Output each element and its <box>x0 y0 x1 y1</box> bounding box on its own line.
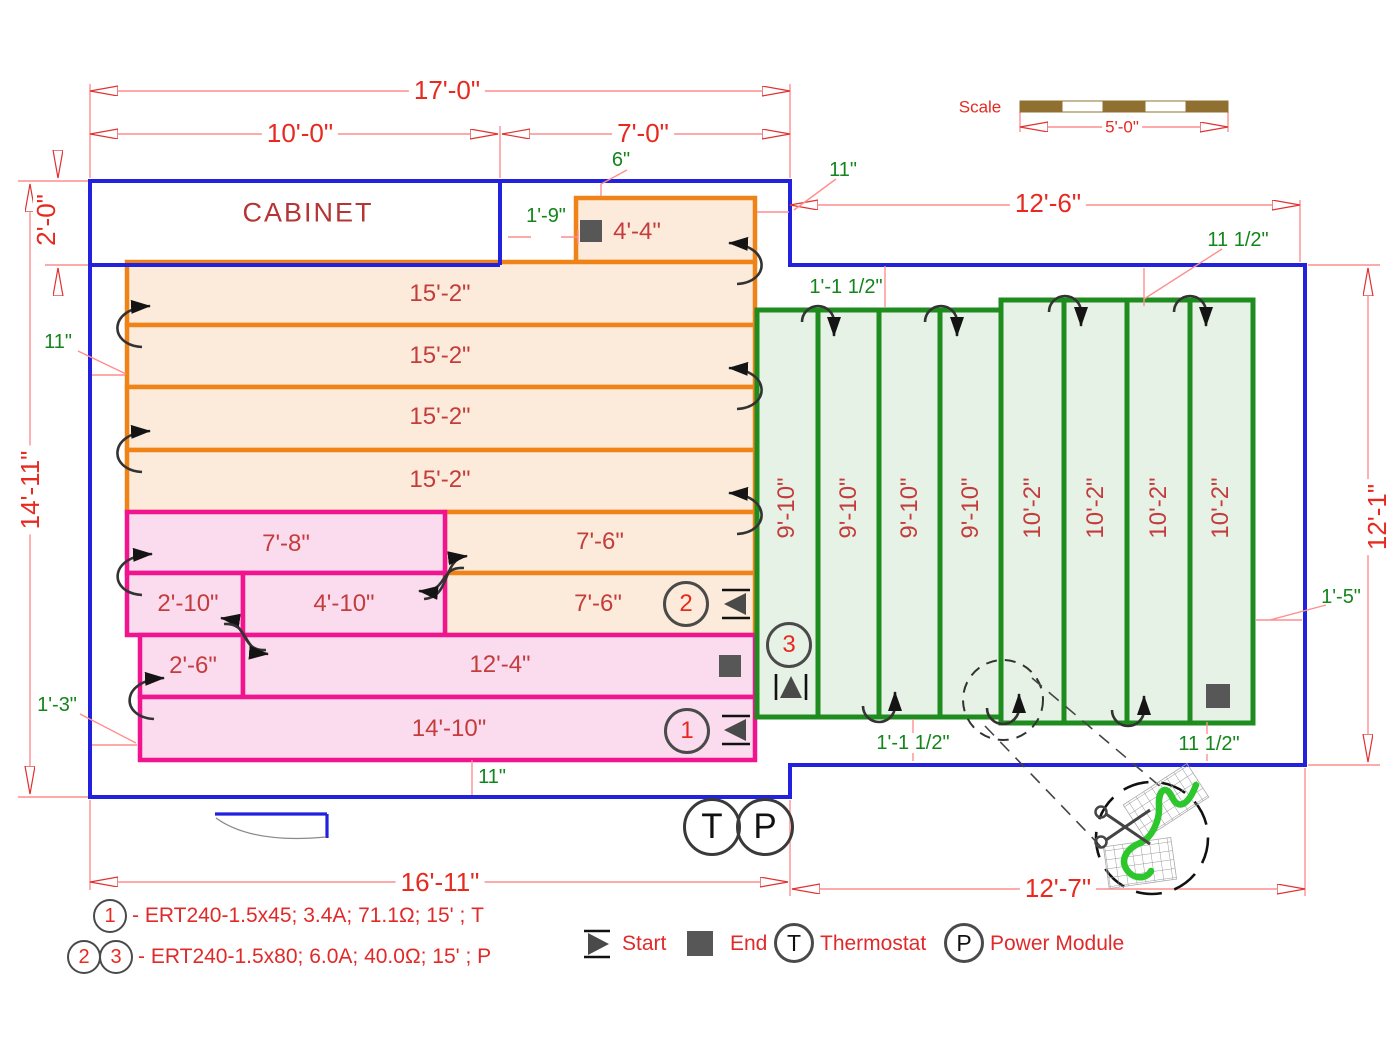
spec2-marker-2-number: 2 <box>78 946 89 969</box>
gap-6in: 6" <box>612 150 630 170</box>
cabinet-label: CABINET <box>242 200 373 227</box>
power-letter: P <box>753 807 776 847</box>
end-symbol-circuit1 <box>719 655 741 677</box>
gap-1-5: 1'-5" <box>1321 587 1361 607</box>
gap-11in-left: 11" <box>44 332 72 352</box>
legend-power-letter: P <box>956 930 971 957</box>
dim-cabinet-depth: 2'-0" <box>33 189 59 251</box>
mat-label-o1: 15'-2" <box>409 282 470 306</box>
mat-label-p5: 7'-8" <box>262 532 310 556</box>
mat-label-o3: 15'-2" <box>409 405 470 429</box>
mat-label-o2: 15'-2" <box>409 344 470 368</box>
end-symbol-circuit3 <box>1206 684 1230 708</box>
mat-label-g1: 9'-10" <box>775 477 799 538</box>
mat-label-g6: 10'-2" <box>1084 477 1108 538</box>
mat-label-p6b: 4'-10" <box>313 592 374 616</box>
spec-line-1: - ERT240-1.5x45; 3.4A; 71.1Ω; 15' ; T <box>132 904 484 928</box>
floor-heating-plan: CABINET 17'-0" 10'-0" 7'-0" 12'-6" 16'-1… <box>0 0 1400 1049</box>
dim-bottom-right: 12'-7" <box>1020 875 1096 901</box>
gap-1-1half-bottom: 1'-1 1/2" <box>873 733 952 753</box>
scale-bar <box>1020 101 1228 112</box>
spec2-marker-2: 2 <box>67 940 101 974</box>
scale-seg-1 <box>1020 101 1062 112</box>
spec2-marker-3-number: 3 <box>110 946 121 969</box>
gap-1-3: 1'-3" <box>37 695 77 715</box>
dim-left-height: 14'-11" <box>17 446 43 535</box>
plan-linework <box>0 0 1400 1049</box>
mat-label-p8: 14'-10" <box>412 717 486 741</box>
gap-1-1half-top: 1'-1 1/2" <box>809 277 882 297</box>
scale-length: 5'-0" <box>1102 119 1142 136</box>
mat-label-g2: 9'-10" <box>837 477 861 538</box>
circuit-marker-3-number: 3 <box>782 631 795 659</box>
gap-1-9: 1'-9" <box>526 206 566 226</box>
dim-bottom-left: 16'-11" <box>396 869 485 895</box>
circuit-marker-2-number: 2 <box>679 590 692 618</box>
gap-11half-bottom: 11 1/2" <box>1175 734 1242 754</box>
dim-top-total: 17'-0" <box>409 77 485 103</box>
legend-start-label: Start <box>622 932 666 956</box>
mat-label-o5: 7'-6" <box>576 530 624 554</box>
mat-label-g3: 9'-10" <box>898 477 922 538</box>
gap-11in-bottom: 11" <box>478 767 506 787</box>
mat-label-g4: 9'-10" <box>959 477 983 538</box>
legend-end-label: End <box>730 932 767 956</box>
thermostat-symbol: T <box>683 798 741 856</box>
mat-label-g8: 10'-2" <box>1209 477 1233 538</box>
scale-seg-2 <box>1062 101 1103 112</box>
circuit-marker-1-number: 1 <box>680 717 693 745</box>
legend-power-label: Power Module <box>990 932 1124 956</box>
dim-right-height: 12'-1" <box>1364 479 1390 555</box>
dim-right-section: 12'-6" <box>1010 190 1086 216</box>
spec1-marker-1: 1 <box>93 899 127 933</box>
circuit-marker-3: 3 <box>766 622 812 668</box>
mat-label-o4: 15'-2" <box>409 468 470 492</box>
dim-top-right: 7'-0" <box>612 120 674 146</box>
gap-11half-top: 11 1/2" <box>1207 230 1268 250</box>
dim-top-left: 10'-0" <box>262 120 338 146</box>
legend-thermostat-icon: T <box>774 923 814 963</box>
mat-label-g5: 10'-2" <box>1021 477 1045 538</box>
power-module-symbol: P <box>736 798 794 856</box>
spec1-marker-1-number: 1 <box>104 905 115 928</box>
spec-line-2: - ERT240-1.5x80; 6.0A; 40.0Ω; 15' ; P <box>138 945 491 969</box>
scale-seg-4 <box>1145 101 1186 112</box>
scale-caption: Scale <box>959 99 1002 116</box>
end-symbol-circuit2 <box>580 220 602 242</box>
circuit-marker-2: 2 <box>663 581 709 627</box>
legend-start-icon <box>584 931 610 957</box>
thermostat-letter: T <box>701 807 722 847</box>
mat-label-g7: 10'-2" <box>1147 477 1171 538</box>
circuit-marker-1: 1 <box>664 708 710 754</box>
scale-seg-5 <box>1186 101 1228 112</box>
door-leaf <box>215 814 327 838</box>
legend-power-icon: P <box>944 923 984 963</box>
spec2-marker-3: 3 <box>99 940 133 974</box>
door-swing-arc <box>216 818 326 838</box>
legend-thermostat-label: Thermostat <box>820 932 926 956</box>
legend-thermostat-letter: T <box>787 930 801 957</box>
scale-seg-3 <box>1103 101 1145 112</box>
mat-label-p6a: 2'-10" <box>157 592 218 616</box>
mat-label-p7a: 2'-6" <box>169 654 217 678</box>
legend-end-icon <box>687 931 713 956</box>
mat-label-o0: 4'-4" <box>613 220 661 244</box>
mat-orange-4-4 <box>576 198 755 262</box>
gap-11in-top: 11" <box>829 160 857 180</box>
mat-label-o6: 7'-6" <box>574 592 622 616</box>
mat-label-p7b: 12'-4" <box>469 653 530 677</box>
